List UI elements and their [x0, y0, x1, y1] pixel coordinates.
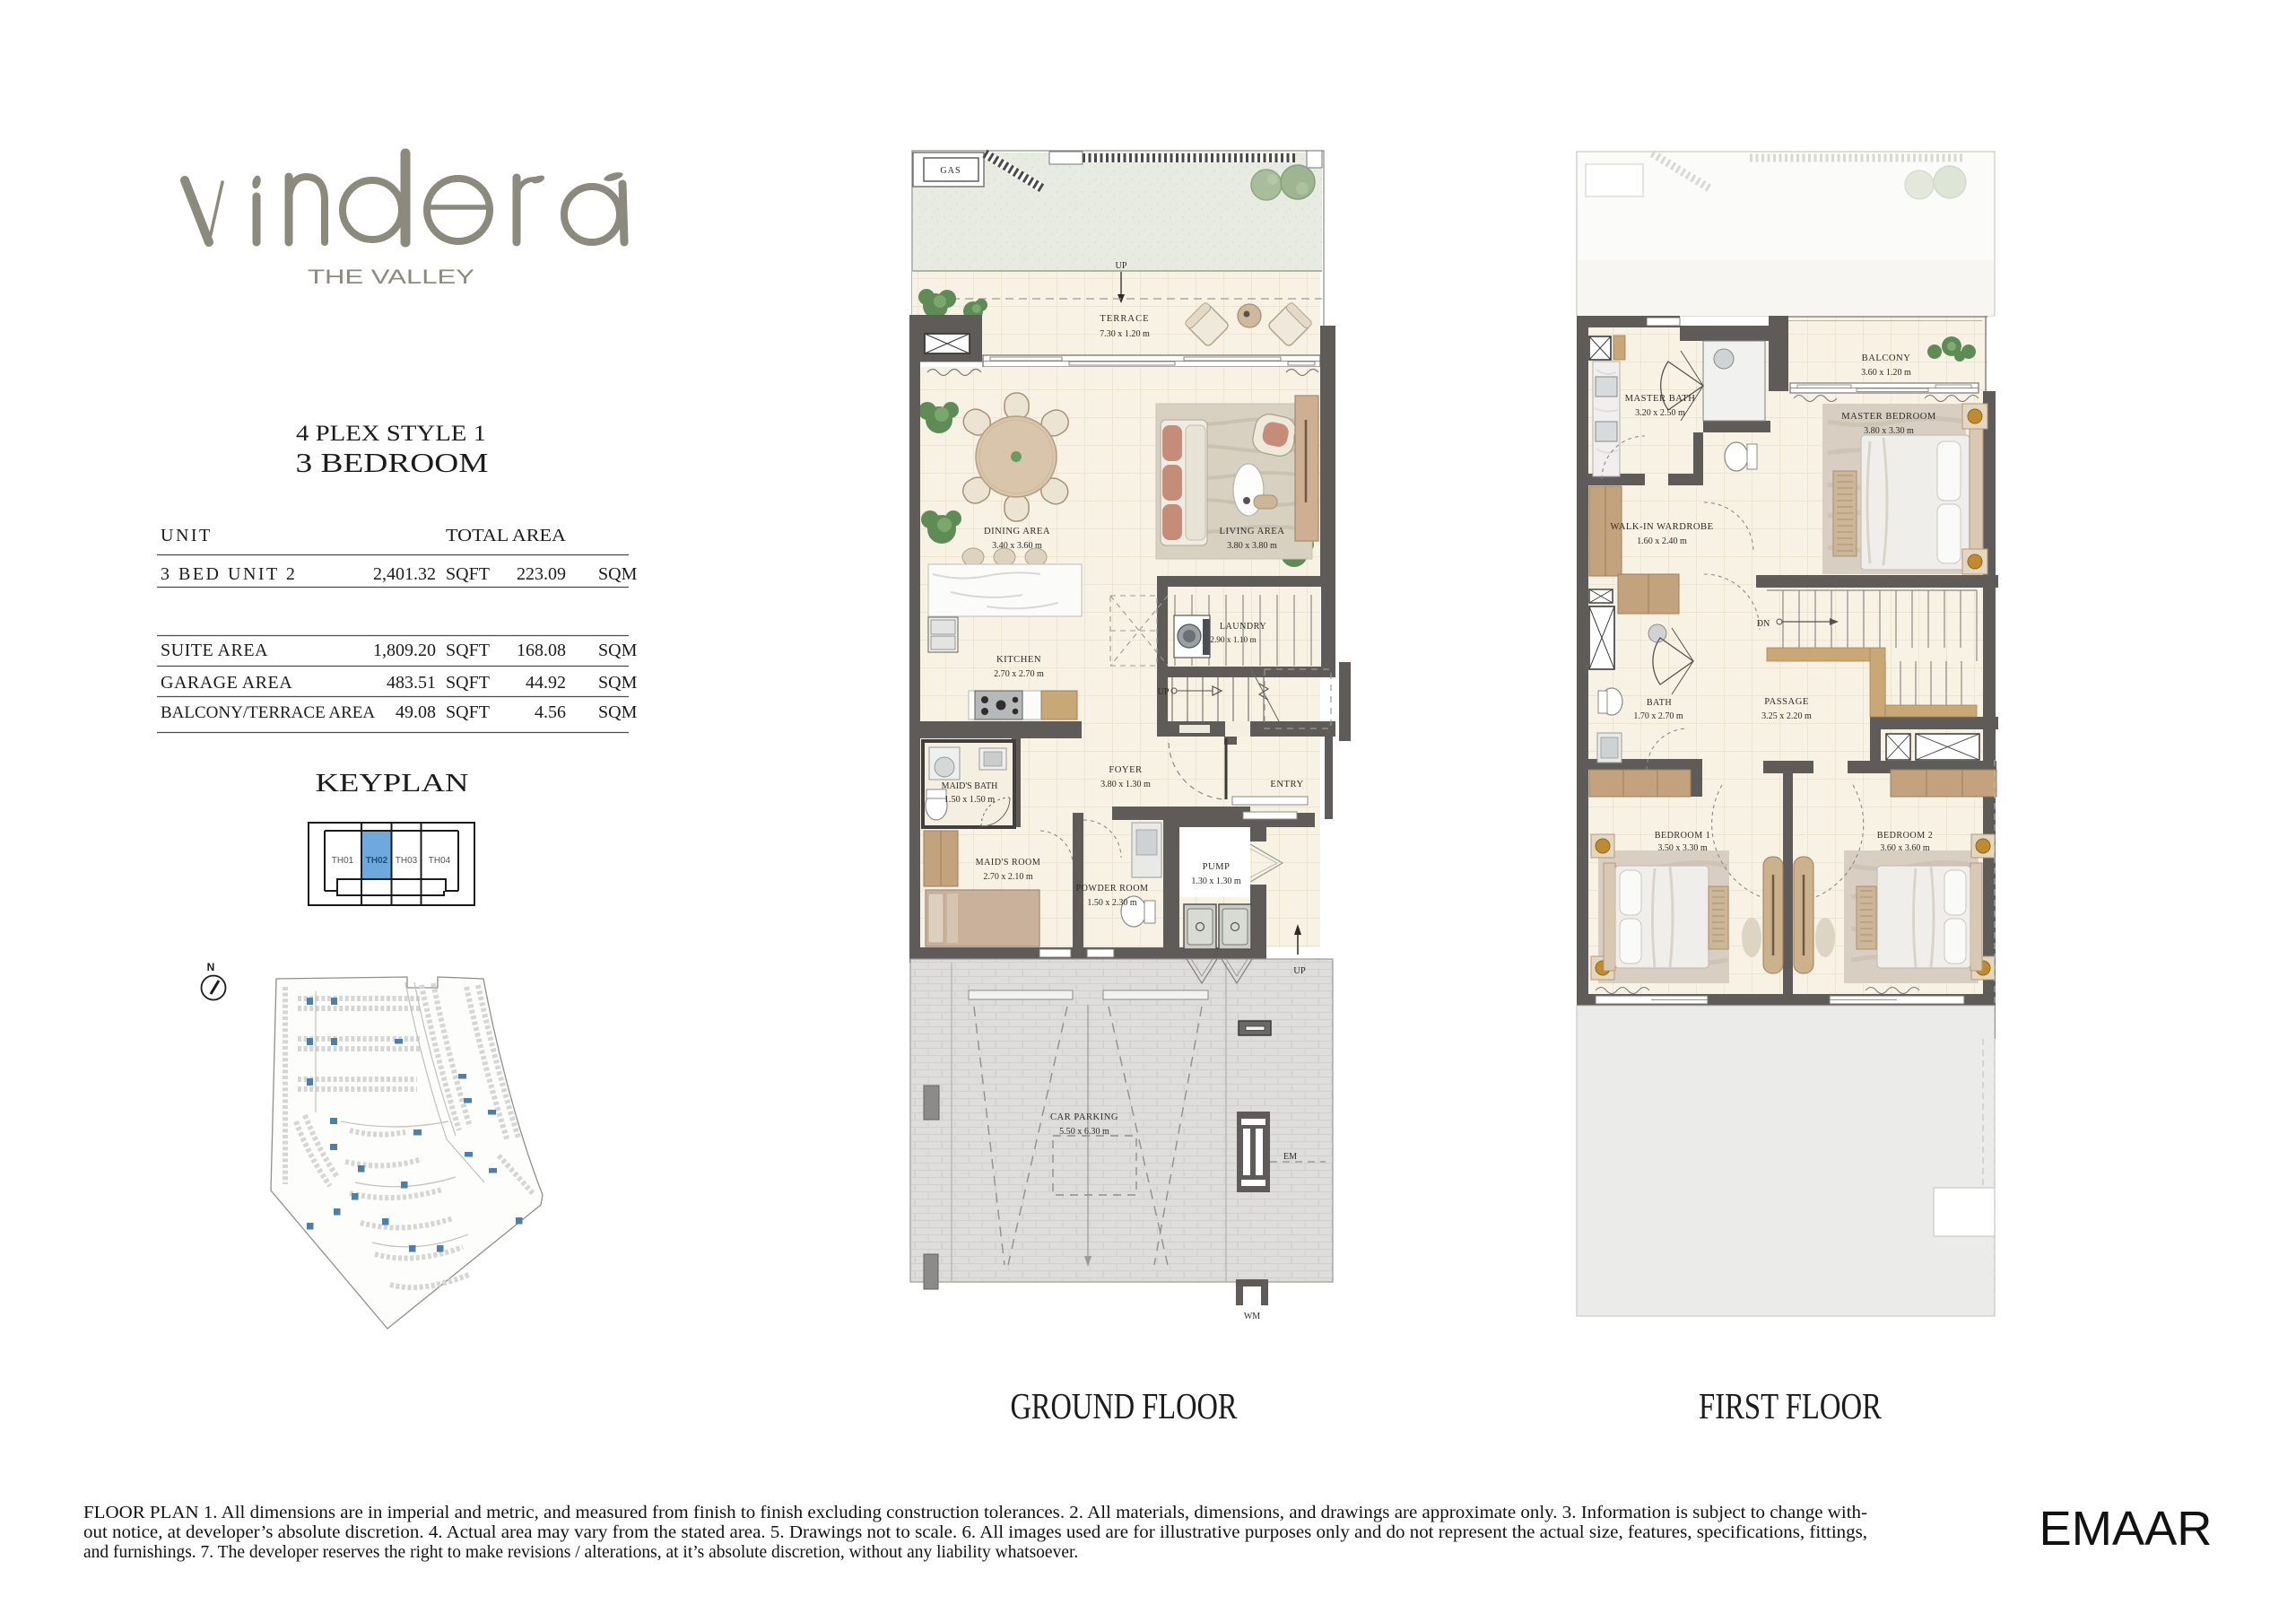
svg-text:168.08: 168.08: [517, 641, 566, 660]
svg-text:TH04: TH04: [429, 856, 451, 866]
svg-text:DINING AREA: DINING AREA: [984, 527, 1050, 536]
svg-text:4 PLEX STYLE 1: 4 PLEX STYLE 1: [296, 422, 486, 446]
svg-text:SQM: SQM: [598, 564, 638, 584]
svg-text:TH03: TH03: [396, 856, 418, 866]
svg-text:PASSAGE: PASSAGE: [1764, 697, 1809, 707]
svg-text:2,401.32: 2,401.32: [373, 564, 436, 584]
svg-text:3 BED UNIT 2: 3 BED UNIT 2: [161, 564, 297, 584]
svg-text:MAID'S ROOM: MAID'S ROOM: [976, 858, 1041, 868]
svg-text:UP: UP: [1158, 687, 1170, 697]
svg-text:4.56: 4.56: [535, 702, 566, 722]
svg-text:ENTRY: ENTRY: [1270, 780, 1303, 789]
svg-text:483.51: 483.51: [387, 673, 436, 693]
svg-text:TH02: TH02: [366, 856, 388, 866]
svg-text:SQM: SQM: [598, 673, 638, 693]
svg-text:UP: UP: [1293, 966, 1306, 976]
svg-text:WALK-IN WARDROBE: WALK-IN WARDROBE: [1610, 522, 1713, 532]
svg-text:5.50 x 6.30 m: 5.50 x 6.30 m: [1059, 1127, 1109, 1137]
svg-text:7.30 x 1.20 m: 7.30 x 1.20 m: [1100, 329, 1150, 339]
svg-text:3.80 x 1.30 m: 3.80 x 1.30 m: [1100, 780, 1151, 789]
svg-text:LAUNDRY: LAUNDRY: [1220, 622, 1266, 632]
svg-text:BALCONY: BALCONY: [1862, 353, 1911, 363]
svg-text:N: N: [207, 961, 215, 973]
svg-text:PUMP: PUMP: [1203, 862, 1231, 872]
svg-text:SUITE AREA: SUITE AREA: [161, 641, 268, 660]
svg-text:3.60 x 3.60 m: 3.60 x 3.60 m: [1880, 843, 1930, 853]
svg-text:3.80 x 3.80 m: 3.80 x 3.80 m: [1227, 541, 1277, 551]
svg-text:EMAAR: EMAAR: [2039, 1502, 2213, 1556]
svg-text:SQM: SQM: [598, 702, 638, 722]
svg-text:223.09: 223.09: [517, 564, 566, 584]
svg-text:44.92: 44.92: [526, 673, 566, 693]
svg-text:SQFT: SQFT: [446, 641, 490, 660]
svg-text:3.80 x 3.30 m: 3.80 x 3.30 m: [1864, 426, 1914, 436]
svg-text:3.25 x 2.20 m: 3.25 x 2.20 m: [1761, 711, 1812, 721]
svg-text:GARAGE AREA: GARAGE AREA: [161, 673, 292, 693]
svg-text:1.30 x 1.30 m: 1.30 x 1.30 m: [1191, 876, 1241, 886]
svg-text:GAS: GAS: [940, 166, 961, 176]
svg-text:1.50 x 2.30 m: 1.50 x 2.30 m: [1087, 898, 1137, 908]
svg-text:SQFT: SQFT: [446, 702, 490, 722]
svg-text:BALCONY/TERRACE AREA: BALCONY/TERRACE AREA: [161, 703, 375, 722]
svg-text:1,809.20: 1,809.20: [373, 641, 436, 660]
svg-text:1.70 x 2.70 m: 1.70 x 2.70 m: [1633, 711, 1683, 721]
svg-text:TH01: TH01: [332, 856, 354, 866]
svg-text:TOTAL AREA: TOTAL AREA: [446, 526, 567, 545]
svg-text:3.20 x 2.50 m: 3.20 x 2.50 m: [1635, 408, 1685, 418]
svg-text:1.50 x 1.50 m: 1.50 x 1.50 m: [944, 795, 995, 805]
svg-text:MAID'S BATH: MAID'S BATH: [942, 781, 998, 791]
svg-text:MASTER BATH: MASTER BATH: [1625, 394, 1696, 404]
svg-text:DN: DN: [1757, 619, 1770, 629]
svg-text:3.60 x 1.20 m: 3.60 x 1.20 m: [1861, 368, 1911, 378]
svg-text:WM: WM: [1244, 1312, 1260, 1321]
svg-text:2.90 x 1.10 m: 2.90 x 1.10 m: [1210, 636, 1257, 645]
svg-text:UNIT: UNIT: [161, 526, 213, 545]
svg-text:49.08: 49.08: [396, 702, 436, 722]
svg-text:SQM: SQM: [598, 641, 638, 660]
svg-text:FIRST FLOOR: FIRST FLOOR: [1699, 1385, 1883, 1426]
svg-text:TERRACE: TERRACE: [1100, 314, 1149, 324]
svg-text:UP: UP: [1116, 261, 1127, 271]
svg-text:out notice, at developer’s abs: out notice, at developer’s absolute disc…: [83, 1523, 1867, 1542]
svg-text:KEYPLAN: KEYPLAN: [316, 770, 469, 798]
svg-text:THE VALLEY: THE VALLEY: [308, 266, 474, 288]
svg-text:2.70 x 2.70 m: 2.70 x 2.70 m: [994, 669, 1044, 679]
svg-text:POWDER ROOM: POWDER ROOM: [1076, 884, 1149, 894]
svg-text:FLOOR PLAN 1. All dimensions a: FLOOR PLAN 1. All dimensions are in impe…: [83, 1504, 1867, 1522]
svg-text:BEDROOM 2: BEDROOM 2: [1877, 831, 1934, 841]
svg-text:MASTER BEDROOM: MASTER BEDROOM: [1841, 412, 1936, 422]
svg-text:1.60 x 2.40 m: 1.60 x 2.40 m: [1637, 536, 1687, 546]
svg-text:GROUND FLOOR: GROUND FLOOR: [1011, 1385, 1239, 1426]
svg-text:and furnishings. 7. The develo: and furnishings. 7. The developer reserv…: [83, 1543, 1078, 1562]
svg-text:3.50 x 3.30 m: 3.50 x 3.30 m: [1657, 843, 1708, 853]
svg-text:CAR PARKING: CAR PARKING: [1050, 1112, 1118, 1122]
svg-text:KITCHEN: KITCHEN: [996, 655, 1041, 665]
svg-text:LIVING AREA: LIVING AREA: [1220, 527, 1285, 536]
svg-text:FOYER: FOYER: [1109, 765, 1143, 775]
svg-text:SQFT: SQFT: [446, 673, 490, 693]
svg-text:SQFT: SQFT: [446, 564, 490, 584]
svg-text:3 BEDROOM: 3 BEDROOM: [296, 447, 489, 478]
svg-text:2.70 x 2.10 m: 2.70 x 2.10 m: [983, 872, 1033, 882]
svg-text:BATH: BATH: [1647, 698, 1672, 708]
svg-text:BEDROOM 1: BEDROOM 1: [1655, 831, 1711, 841]
svg-text:EM: EM: [1283, 1152, 1297, 1162]
